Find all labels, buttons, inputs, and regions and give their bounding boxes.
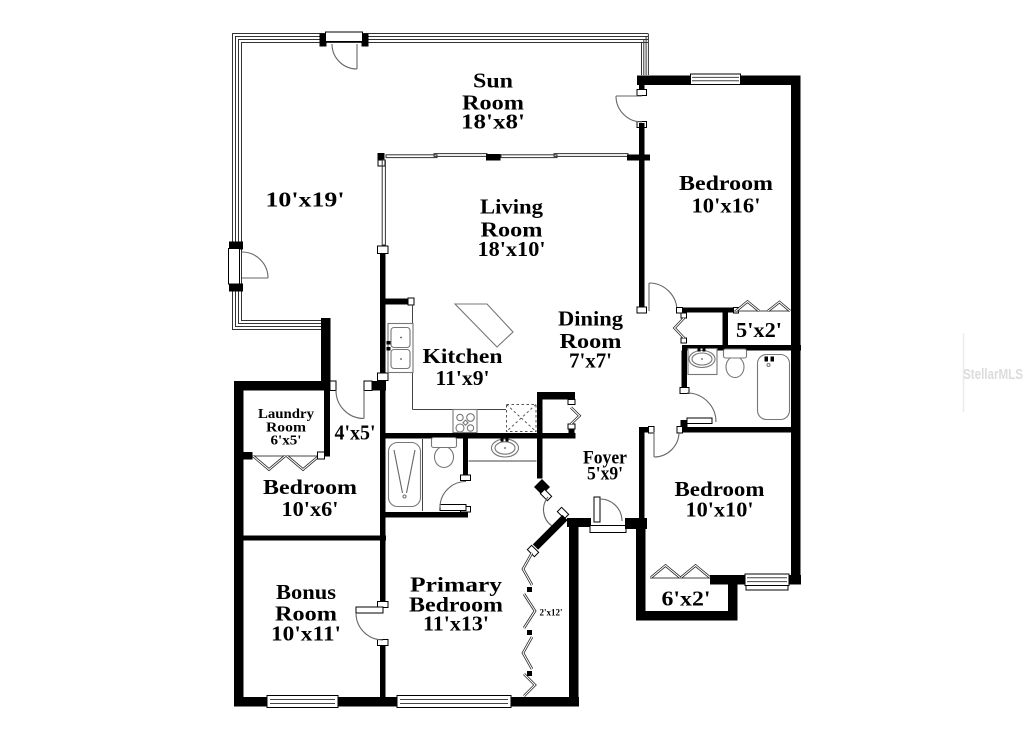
svg-text:18'x8': 18'x8' [461,110,525,134]
svg-text:5'x2': 5'x2' [736,318,782,342]
svg-text:Bonus: Bonus [276,580,336,604]
svg-text:6'x2': 6'x2' [662,587,711,611]
svg-text:StellarMLS: StellarMLS [963,366,1023,383]
svg-text:10'x6': 10'x6' [282,497,339,521]
svg-text:Bedroom: Bedroom [679,171,774,195]
svg-text:10'x10': 10'x10' [686,498,754,522]
svg-text:10'x11': 10'x11' [271,622,341,646]
svg-text:Sun: Sun [473,69,513,93]
svg-text:10'x16': 10'x16' [692,194,761,218]
svg-text:Living: Living [480,195,544,219]
svg-text:6'x5': 6'x5' [271,433,302,448]
svg-text:Bedroom: Bedroom [263,475,358,499]
svg-text:11'x9': 11'x9' [436,366,490,390]
svg-text:7'x7': 7'x7' [569,349,612,373]
svg-text:Kitchen: Kitchen [423,344,503,368]
svg-text:5'x9': 5'x9' [587,465,623,485]
svg-text:10'x19': 10'x19' [266,188,345,212]
svg-text:2'x12': 2'x12' [540,609,563,619]
svg-text:18'x10': 18'x10' [478,237,546,261]
svg-text:11'x13': 11'x13' [423,612,489,636]
svg-text:Dining: Dining [558,307,624,331]
svg-text:4'x5': 4'x5' [335,421,376,445]
